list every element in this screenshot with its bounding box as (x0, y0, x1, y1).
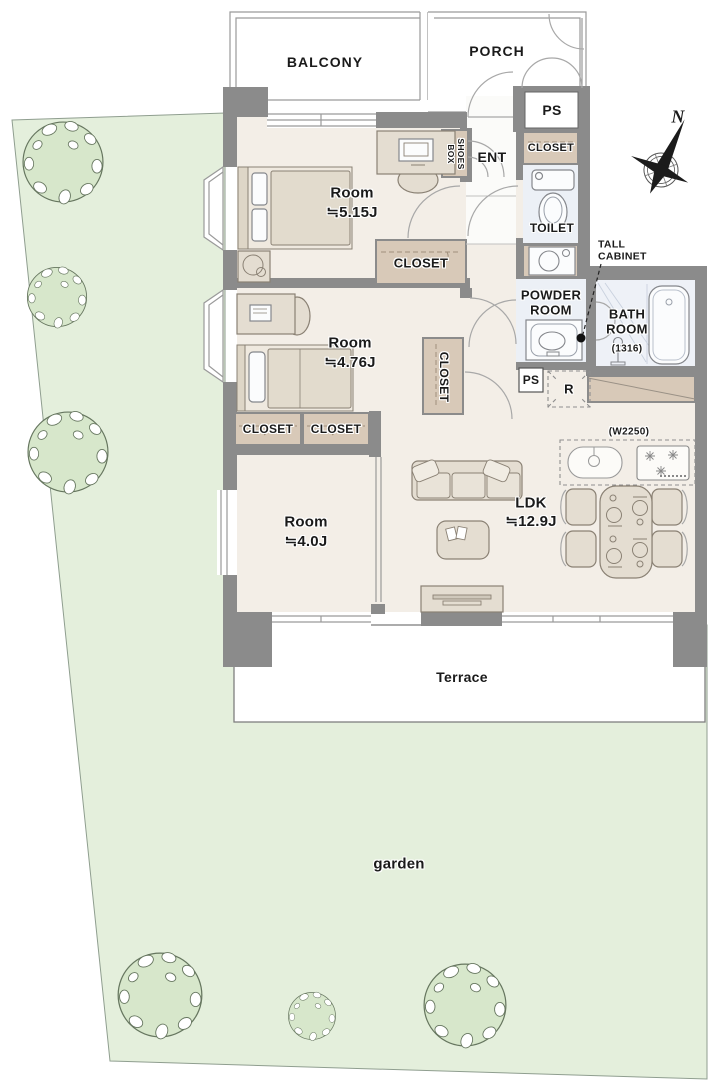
room3-name-label: Room (284, 514, 327, 531)
ent-label: ENT (478, 149, 507, 165)
garden-label: garden (373, 856, 424, 873)
ps-top-label: PS (542, 102, 561, 118)
room2-closet-label: CLOSET (437, 352, 451, 402)
washing-machine-icon (529, 247, 575, 275)
fridge-label: R (564, 382, 574, 397)
tv-board (421, 586, 503, 612)
hall-closet-right-label: CLOSET (311, 422, 361, 436)
tall-cabinet-label: TALL CABINET (598, 239, 660, 263)
room2-name-label: Room (328, 335, 371, 352)
room1-name-label: Room (330, 185, 373, 202)
porch-label: PORCH (469, 43, 525, 59)
floor-plan: BALCONY PORCH PS CLOSET ENT SHOES BOX TO… (0, 0, 714, 1091)
dining-set (561, 486, 688, 578)
ldk-name-label: LDK (515, 495, 546, 512)
sofa (411, 459, 522, 500)
compass-north-label: N (671, 107, 684, 128)
entry-closet-label: CLOSET (528, 142, 574, 154)
kitchen-sink (568, 447, 622, 478)
floor-plan-drawing (0, 0, 714, 1091)
shoes-box-label: SHOES BOX (445, 133, 465, 175)
room2-size-label: ≒4.76J (324, 353, 375, 371)
nightstand (238, 251, 270, 282)
washbasin-icon (526, 320, 582, 360)
kitchen-dim-label: (W2250) (609, 427, 649, 438)
powder-room-label: POWDER ROOM (513, 288, 589, 317)
bath-room-label: BATH ROOM (597, 307, 657, 336)
room3-size-label: ≒4.0J (285, 532, 328, 550)
desk-room2 (237, 294, 310, 335)
coffee-table (437, 521, 489, 559)
dining-table (600, 486, 652, 578)
toilet-label: TOILET (530, 221, 574, 235)
terrace-label: Terrace (436, 669, 488, 685)
compass-icon (620, 105, 712, 206)
balcony-label: BALCONY (287, 54, 363, 70)
stove-icon (637, 446, 689, 480)
ps-kitchen-label: PS (523, 373, 540, 387)
bath-dim-label: (1316) (612, 344, 643, 355)
hall-closet-left-label: CLOSET (243, 422, 293, 436)
room1-closet-label: CLOSET (394, 256, 449, 271)
ldk-size-label: ≒12.9J (505, 512, 556, 530)
room1-size-label: ≒5.15J (326, 203, 377, 221)
